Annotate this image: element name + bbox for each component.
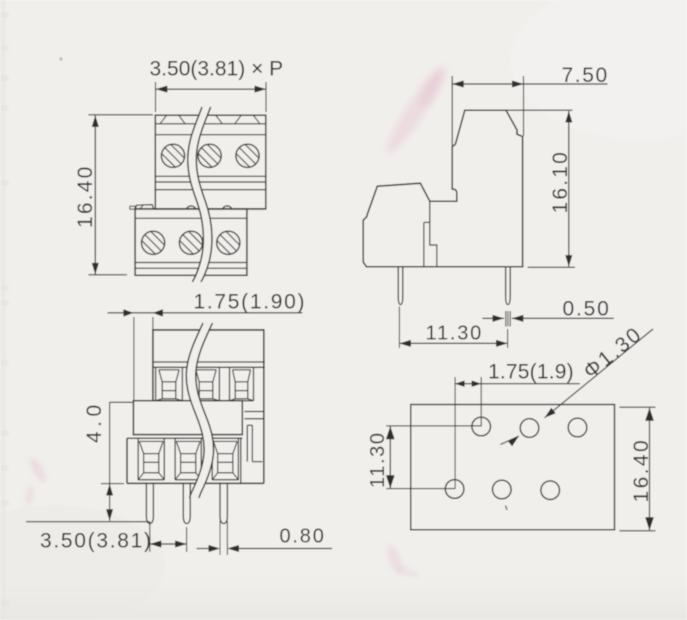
svg-text:1.75(1.9): 1.75(1.9) bbox=[488, 361, 574, 384]
svg-text:4.0: 4.0 bbox=[83, 400, 106, 443]
svg-text:0.80: 0.80 bbox=[280, 526, 326, 548]
svg-text:3.50(3.81) × P: 3.50(3.81) × P bbox=[150, 58, 284, 81]
svg-text:1.75(1.90): 1.75(1.90) bbox=[194, 291, 307, 314]
svg-text:16.40: 16.40 bbox=[74, 164, 97, 228]
svg-text:0.50: 0.50 bbox=[563, 298, 611, 321]
svg-text:11.30: 11.30 bbox=[426, 323, 484, 345]
svg-text:3.50(3.81): 3.50(3.81) bbox=[40, 530, 153, 553]
svg-text:11.30: 11.30 bbox=[367, 431, 389, 488]
